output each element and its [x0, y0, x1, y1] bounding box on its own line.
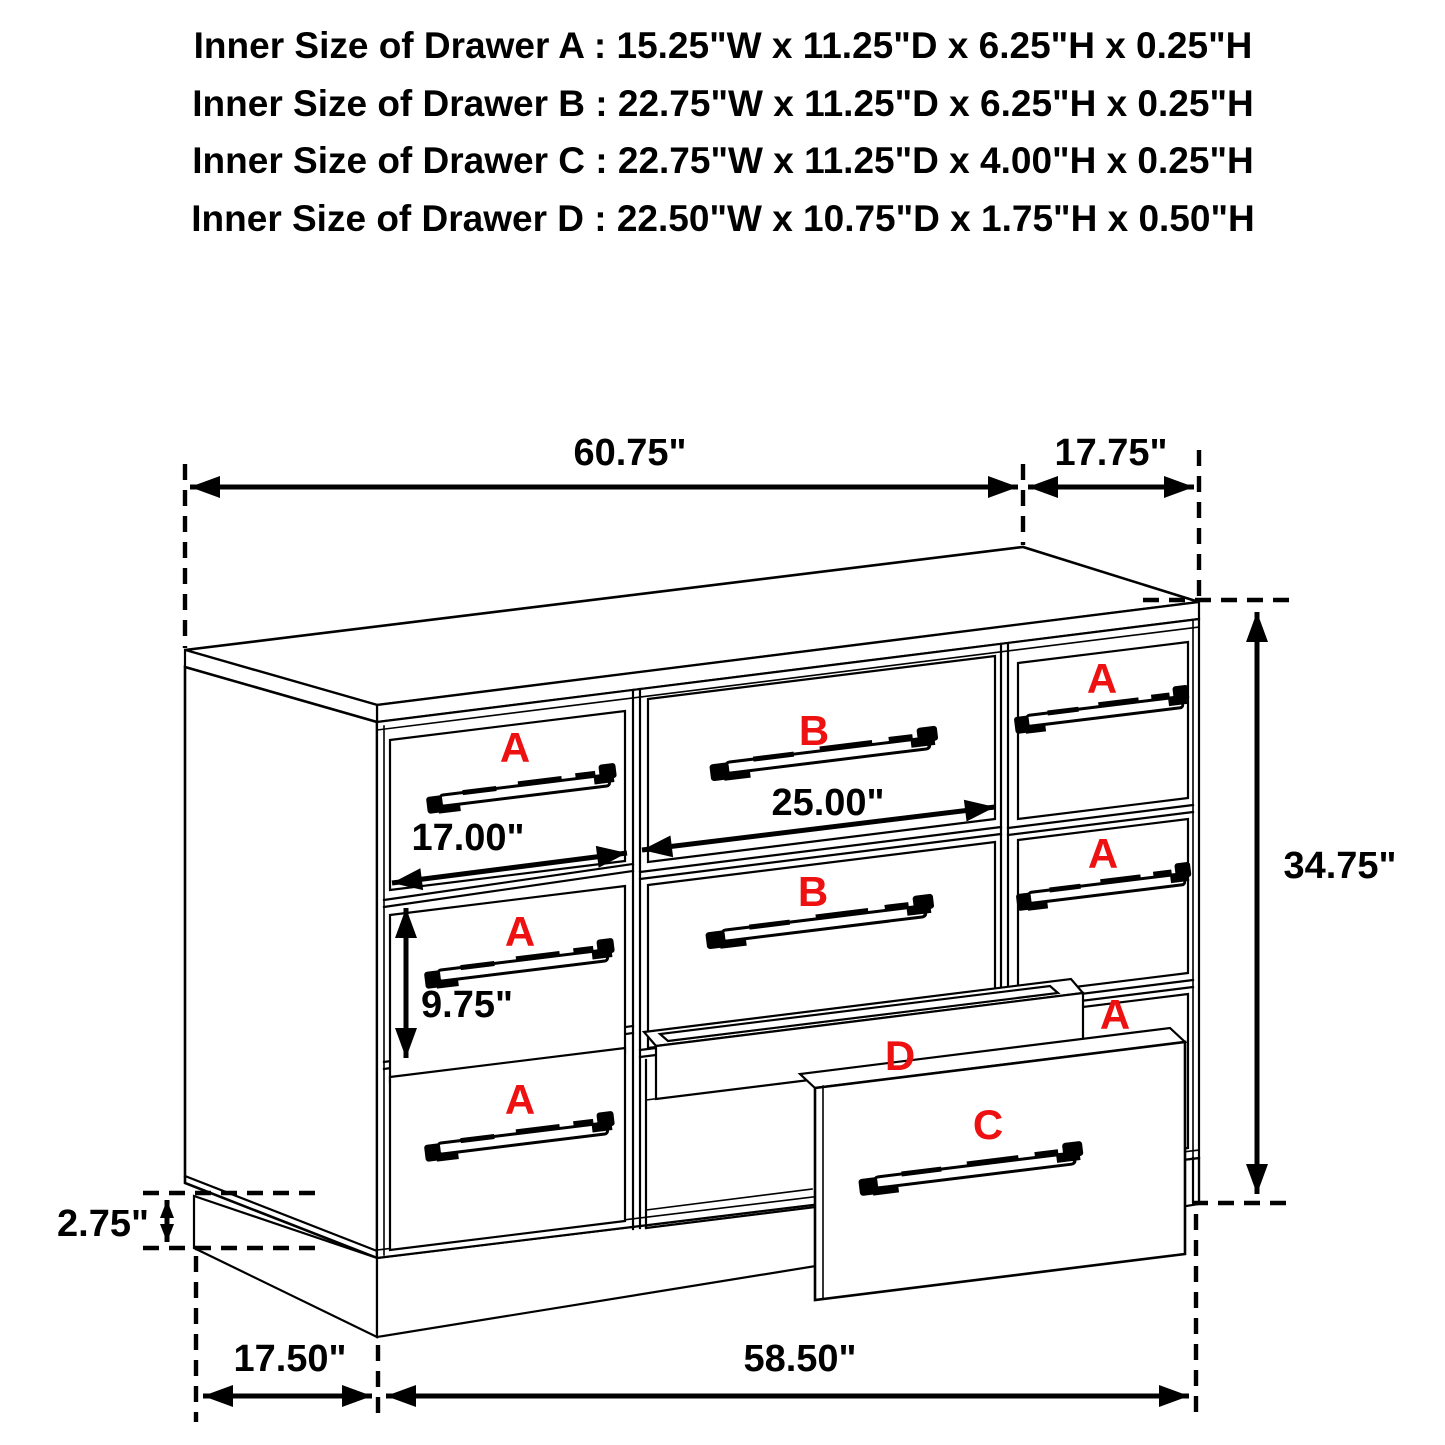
dresser-dimension-diagram: Inner Size of Drawer A : 15.25"W x 11.25… [0, 0, 1445, 1445]
dim-base-depth-value: 17.50" [233, 1338, 346, 1380]
title-line-1: Inner Size of Drawer A : 15.25"W x 11.25… [194, 25, 1253, 66]
label-drawer-a4: A [1087, 655, 1117, 702]
title-line-2: Inner Size of Drawer B : 22.75"W x 11.25… [192, 83, 1253, 124]
dresser-dimension-diagram-page: Inner Size of Drawer A : 15.25"W x 11.25… [0, 0, 1445, 1445]
label-drawer-a6: A [1100, 991, 1130, 1038]
title-line-4: Inner Size of Drawer D : 22.50"W x 10.75… [191, 198, 1254, 239]
dim-top-depth-value: 17.75" [1054, 432, 1167, 474]
label-drawer-d: D [885, 1032, 915, 1079]
dim-top-width-value: 60.75" [573, 432, 686, 474]
dresser-left-side-panel [185, 667, 377, 1258]
label-drawer-a3: A [505, 1076, 535, 1123]
dim-left-drawer-width-value: 17.00" [411, 817, 524, 859]
dim-middle-drawer-width-value: 25.00" [771, 782, 884, 824]
label-drawer-b2: B [798, 868, 828, 915]
title-line-3: Inner Size of Drawer C : 22.75"W x 11.25… [192, 140, 1253, 181]
dim-base-width: 58.50" [386, 1338, 1189, 1396]
dim-base-height-value: 2.75" [57, 1203, 149, 1245]
label-drawer-c: C [973, 1101, 1003, 1148]
title-block: Inner Size of Drawer A : 15.25"W x 11.25… [191, 25, 1254, 239]
label-drawer-b1: B [799, 707, 829, 754]
left-column-drawers [390, 711, 625, 1250]
drawer-c-box [800, 1028, 1185, 1300]
dim-side-drawer-height-value: 9.75" [421, 984, 513, 1026]
dresser-drawing: A B A A B A A D A C [185, 547, 1199, 1337]
label-drawer-a2: A [505, 908, 535, 955]
dim-overall-height-value: 34.75" [1283, 845, 1396, 887]
label-drawer-a1: A [500, 724, 530, 771]
dim-base-width-value: 58.50" [743, 1338, 856, 1380]
label-drawer-a5: A [1088, 830, 1118, 877]
